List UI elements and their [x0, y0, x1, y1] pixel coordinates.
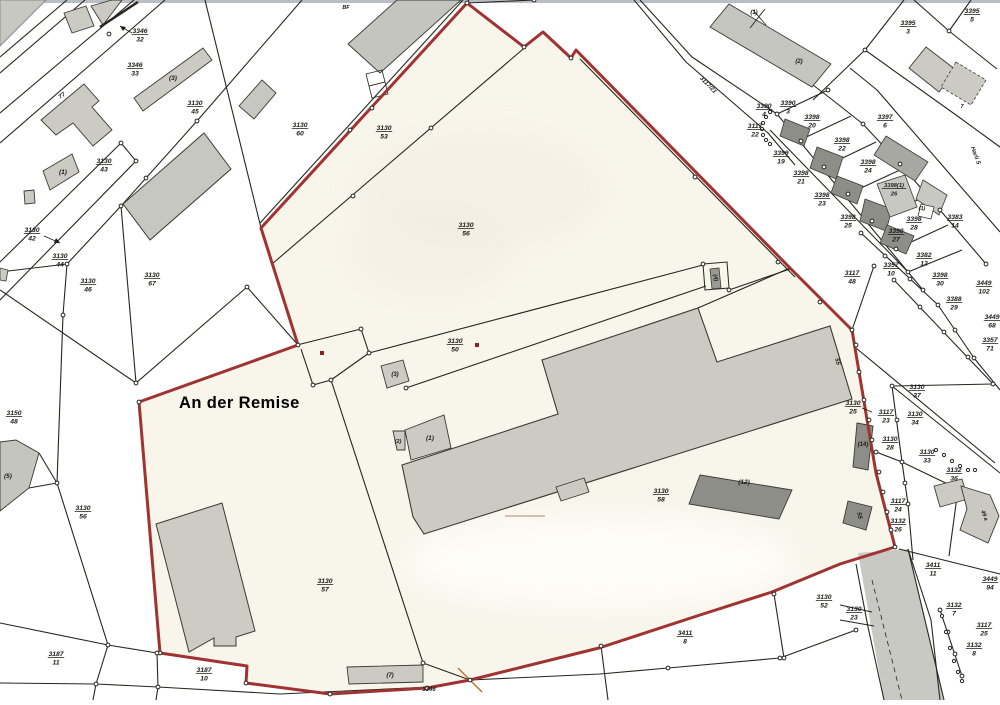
svg-text:32: 32 — [136, 37, 144, 44]
svg-text:3117: 3117 — [845, 270, 861, 277]
svg-text:29: 29 — [949, 305, 958, 312]
svg-text:3132: 3132 — [966, 642, 981, 649]
svg-text:3130: 3130 — [447, 338, 462, 345]
svg-text:3388: 3388 — [946, 296, 961, 303]
svg-text:3399: 3399 — [773, 150, 788, 157]
svg-text:8: 8 — [972, 651, 976, 658]
svg-text:3398: 3398 — [932, 272, 947, 279]
svg-text:20: 20 — [807, 123, 816, 130]
svg-text:3130: 3130 — [846, 606, 861, 613]
svg-text:102: 102 — [978, 289, 990, 296]
svg-text:3130: 3130 — [816, 594, 831, 601]
svg-text:44: 44 — [55, 262, 64, 269]
svg-text:3130: 3130 — [907, 411, 922, 418]
svg-text:25: 25 — [843, 223, 852, 230]
svg-text:3398(1): 3398(1) — [884, 183, 904, 189]
svg-text:3117: 3117 — [977, 622, 993, 629]
svg-text:3130: 3130 — [52, 253, 67, 260]
svg-text:22: 22 — [837, 146, 846, 153]
svg-text:An der Remise: An der Remise — [179, 394, 300, 412]
svg-text:48: 48 — [847, 279, 856, 286]
svg-text:3187: 3187 — [196, 667, 212, 674]
svg-text:3390: 3390 — [780, 100, 795, 107]
svg-text:3187: 3187 — [48, 651, 64, 658]
svg-text:3346: 3346 — [127, 62, 142, 69]
svg-text:8: 8 — [683, 639, 687, 646]
svg-text:3398: 3398 — [793, 170, 808, 177]
svg-text:56: 56 — [462, 231, 470, 238]
svg-text:(12): (12) — [738, 479, 750, 486]
svg-text:3346: 3346 — [132, 28, 147, 35]
svg-text:3449: 3449 — [982, 576, 997, 583]
svg-text:33: 33 — [923, 458, 931, 465]
svg-text:3130: 3130 — [845, 400, 860, 407]
svg-text:3130: 3130 — [80, 278, 95, 285]
svg-text:24: 24 — [863, 168, 872, 175]
svg-text:56: 56 — [79, 514, 87, 521]
svg-text:67: 67 — [148, 281, 157, 288]
svg-text:3: 3 — [906, 29, 910, 36]
svg-text:43: 43 — [99, 167, 108, 174]
svg-text:(2): (2) — [395, 439, 402, 445]
svg-text:3346: 3346 — [422, 687, 436, 693]
svg-text:46: 46 — [83, 287, 92, 294]
svg-text:(7): (7) — [386, 673, 393, 679]
svg-text:3117: 3117 — [879, 409, 895, 416]
svg-text:(1): (1) — [426, 435, 434, 442]
svg-text:3411: 3411 — [678, 630, 693, 637]
svg-text:BF: BF — [342, 5, 350, 11]
svg-text:50: 50 — [451, 347, 459, 354]
svg-text:11: 11 — [929, 571, 936, 578]
svg-text:26: 26 — [890, 192, 898, 198]
svg-text:3357: 3357 — [883, 262, 899, 269]
svg-text:3130: 3130 — [96, 158, 111, 165]
svg-text:3130: 3130 — [919, 449, 934, 456]
svg-text:4: 4 — [761, 112, 766, 119]
svg-text:5: 5 — [970, 17, 974, 24]
svg-text:33: 33 — [131, 71, 139, 78]
svg-text:3398: 3398 — [814, 192, 829, 199]
svg-text:3398: 3398 — [906, 216, 921, 223]
svg-text:37: 37 — [913, 393, 922, 400]
svg-text:(4): (4) — [711, 274, 718, 282]
svg-text:3130: 3130 — [187, 100, 202, 107]
svg-text:3397: 3397 — [877, 114, 893, 121]
svg-text:3117: 3117 — [891, 498, 907, 505]
svg-text:(3): (3) — [169, 75, 177, 82]
svg-text:10: 10 — [887, 271, 895, 278]
svg-text:24: 24 — [893, 507, 902, 514]
svg-text:3357: 3357 — [982, 337, 998, 344]
svg-text:10: 10 — [200, 676, 208, 683]
svg-text:3130: 3130 — [458, 222, 473, 229]
svg-text:3383: 3383 — [947, 214, 962, 221]
svg-text:19: 19 — [777, 159, 785, 166]
svg-text:(1): (1) — [750, 10, 757, 16]
svg-text:28: 28 — [885, 445, 894, 452]
svg-text:45: 45 — [190, 109, 199, 116]
svg-text:94: 94 — [986, 585, 994, 592]
svg-text:6: 6 — [883, 123, 887, 130]
svg-text:3449: 3449 — [976, 280, 991, 287]
svg-text:11: 11 — [52, 660, 59, 667]
svg-text:23: 23 — [817, 201, 826, 208]
svg-text:3132: 3132 — [890, 518, 905, 525]
svg-text:(14): (14) — [858, 442, 869, 448]
svg-text:25: 25 — [979, 631, 988, 638]
svg-text:71: 71 — [986, 346, 994, 353]
svg-text:68: 68 — [988, 323, 996, 330]
svg-text:3398: 3398 — [834, 137, 849, 144]
svg-text:3398: 3398 — [840, 214, 855, 221]
svg-text:3395: 3395 — [964, 8, 979, 15]
svg-text:3382: 3382 — [916, 252, 931, 259]
svg-text:(1): (1) — [59, 169, 67, 176]
svg-text:3398: 3398 — [888, 228, 903, 235]
svg-text:34: 34 — [911, 420, 919, 427]
svg-text:3130: 3130 — [144, 272, 159, 279]
svg-text:3398: 3398 — [860, 159, 875, 166]
svg-text:3130: 3130 — [653, 488, 668, 495]
svg-text:52: 52 — [820, 603, 828, 610]
svg-text:3117: 3117 — [748, 123, 764, 130]
svg-text:3130: 3130 — [75, 505, 90, 512]
svg-text:3130: 3130 — [909, 384, 924, 391]
svg-text:(1): (1) — [919, 206, 926, 212]
svg-text:3398: 3398 — [804, 114, 819, 121]
svg-text:3130: 3130 — [292, 122, 307, 129]
svg-text:3130: 3130 — [317, 578, 332, 585]
svg-text:58: 58 — [657, 497, 665, 504]
svg-text:3130: 3130 — [376, 125, 391, 132]
svg-text:12: 12 — [920, 261, 928, 268]
svg-text:3130: 3130 — [882, 436, 897, 443]
svg-text:28: 28 — [909, 225, 918, 232]
svg-text:3150: 3150 — [6, 410, 21, 417]
svg-text:3130: 3130 — [24, 227, 39, 234]
svg-text:3411: 3411 — [926, 562, 941, 569]
svg-text:21: 21 — [796, 179, 805, 186]
svg-text:3449: 3449 — [984, 314, 999, 321]
svg-text:3132: 3132 — [946, 602, 961, 609]
svg-text:3132: 3132 — [946, 467, 961, 474]
svg-text:23: 23 — [849, 615, 858, 622]
svg-text:3: 3 — [786, 109, 790, 116]
svg-text:26: 26 — [893, 527, 902, 534]
svg-text:57: 57 — [321, 587, 330, 594]
svg-text:27: 27 — [891, 237, 901, 244]
svg-text:25: 25 — [848, 409, 857, 416]
svg-text:30: 30 — [936, 281, 944, 288]
svg-text:14: 14 — [951, 223, 959, 230]
svg-text:48: 48 — [9, 419, 18, 426]
svg-text:36: 36 — [950, 476, 958, 483]
svg-text:23: 23 — [881, 418, 890, 425]
svg-text:(2): (2) — [795, 59, 802, 65]
svg-text:(3): (3) — [391, 372, 398, 378]
svg-text:60: 60 — [296, 131, 304, 138]
svg-text:(5): (5) — [4, 473, 12, 480]
svg-text:3390: 3390 — [756, 103, 771, 110]
svg-text:22: 22 — [750, 132, 759, 139]
svg-text:42: 42 — [27, 236, 36, 243]
svg-text:3395: 3395 — [900, 20, 915, 27]
svg-text:53: 53 — [380, 134, 388, 141]
